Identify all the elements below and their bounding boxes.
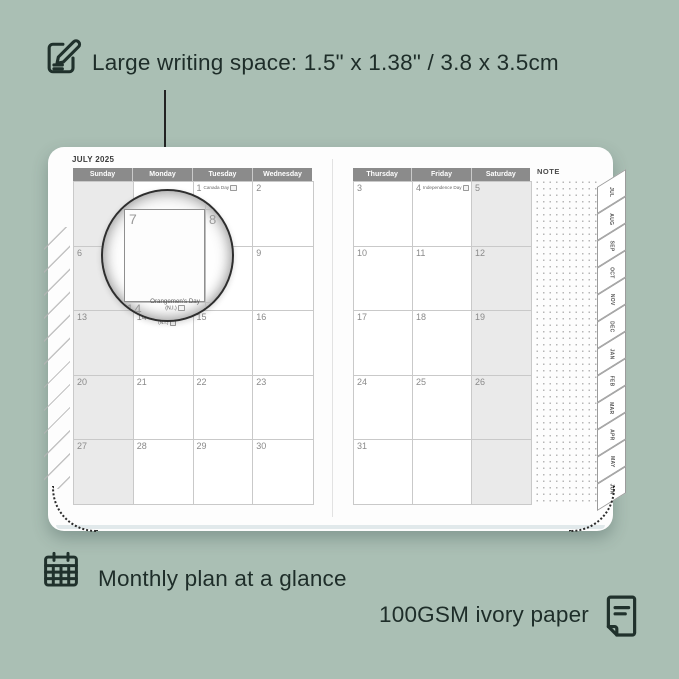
paper-icon — [599, 591, 644, 643]
date-number: 9 — [256, 248, 261, 258]
calendar-cell: 28 — [134, 439, 194, 504]
calendar-cell: 20 — [74, 375, 134, 440]
date-number: 12 — [475, 248, 485, 258]
weekday-label: Thursday — [353, 168, 411, 181]
calendar-cell: 23 — [253, 375, 313, 440]
weekday-label: Friday — [411, 168, 470, 181]
weekday-label: Wednesday — [252, 168, 312, 181]
date-number: 2 — [256, 183, 261, 193]
calendar-cell: 31 — [354, 439, 413, 504]
calendar-cell: 4Independence Day — [413, 181, 472, 246]
date-number: 22 — [197, 377, 207, 387]
calendar-cell: 5 — [472, 181, 531, 246]
date-number: 28 — [137, 441, 147, 451]
weekday-label: Saturday — [471, 168, 530, 181]
date-number: 1 — [197, 183, 202, 193]
calendar-cell: 3 — [354, 181, 413, 246]
note-pencil-icon — [40, 36, 84, 80]
date-number: 13 — [77, 312, 87, 322]
date-number: 30 — [256, 441, 266, 451]
date-number: 6 — [77, 248, 82, 258]
weekday-label: Tuesday — [192, 168, 252, 181]
date-number: 3 — [357, 183, 362, 193]
calendar-grid-right: 34Independence Day 510111217181924252631 — [353, 181, 532, 505]
magnified-day-8: 8 — [209, 212, 216, 227]
weekday-header-right: ThursdayFridaySaturday — [353, 168, 530, 181]
date-number: 17 — [357, 312, 367, 322]
calendar-cell: 9 — [253, 246, 313, 311]
calendar-cell: 10 — [354, 246, 413, 311]
calendar-cell: 30 — [253, 439, 313, 504]
date-number: 24 — [357, 377, 367, 387]
calendar-cell: 26 — [472, 375, 531, 440]
weekday-header-left: SundayMondayTuesdayWednesday — [73, 168, 312, 181]
calendar-cell — [472, 439, 531, 504]
calendar-cell: 15 — [194, 310, 254, 375]
top-annotation-text: Large writing space: 1.5" x 1.38" / 3.8 … — [92, 50, 559, 76]
magnified-day-7: 7 — [129, 211, 137, 227]
holiday-label: Independence Day — [423, 185, 469, 191]
calendar-cell: 12 — [472, 246, 531, 311]
holiday-checkbox — [230, 185, 237, 191]
page-edge-hatching — [44, 227, 70, 489]
date-number: 31 — [357, 441, 367, 451]
magnifier-circle: 7 8 14 Orangemen's Day (N.I.) — [101, 189, 234, 322]
date-number: 29 — [197, 441, 207, 451]
weekday-label: Monday — [132, 168, 192, 181]
calendar-cell: 19 — [472, 310, 531, 375]
calendar-cell: 18 — [413, 310, 472, 375]
date-number: 18 — [416, 312, 426, 322]
calendar-cell: 21 — [134, 375, 194, 440]
date-number: 26 — [475, 377, 485, 387]
weekday-label: Sunday — [73, 168, 132, 181]
bottom-left-annotation-text: Monthly plan at a glance — [98, 566, 347, 592]
bottom-right-annotation-text: 100GSM ivory paper — [379, 602, 589, 628]
date-number: 23 — [256, 377, 266, 387]
date-number: 16 — [256, 312, 266, 322]
calendar-cell — [413, 439, 472, 504]
calendar-cell: 22 — [194, 375, 254, 440]
date-number: 27 — [77, 441, 87, 451]
holiday-label: Canada Day — [204, 185, 237, 191]
calendar-cell: 16 — [253, 310, 313, 375]
date-number: 25 — [416, 377, 426, 387]
notebook-spine — [332, 159, 333, 517]
calendar-cell: 2 — [253, 181, 313, 246]
calendar-cell: 24 — [354, 375, 413, 440]
note-dot-grid — [534, 179, 600, 503]
calendar-cell: 25 — [413, 375, 472, 440]
note-section-label: NOTE — [537, 167, 560, 176]
calendar-cell: 11 — [413, 246, 472, 311]
date-number: 5 — [475, 183, 480, 193]
magnified-holiday: Orangemen's Day (N.I.) — [143, 298, 207, 311]
magnified-day-14: 14 — [126, 301, 142, 317]
date-number: 4 — [416, 183, 421, 193]
holiday-checkbox — [178, 305, 185, 311]
holiday-checkbox — [463, 185, 470, 191]
date-number: 20 — [77, 377, 87, 387]
calendar-cell: 17 — [354, 310, 413, 375]
date-number: 11 — [416, 248, 425, 258]
calendar-grid-icon — [40, 549, 82, 591]
calendar-cell: 29 — [194, 439, 254, 504]
magnified-holiday-sub: (N.I.) — [143, 305, 207, 311]
page-bottom-edge — [56, 525, 605, 529]
month-title: JULY 2025 — [72, 155, 114, 164]
date-number: 21 — [137, 377, 147, 387]
date-number: 19 — [475, 312, 485, 322]
date-number: 10 — [357, 248, 367, 258]
